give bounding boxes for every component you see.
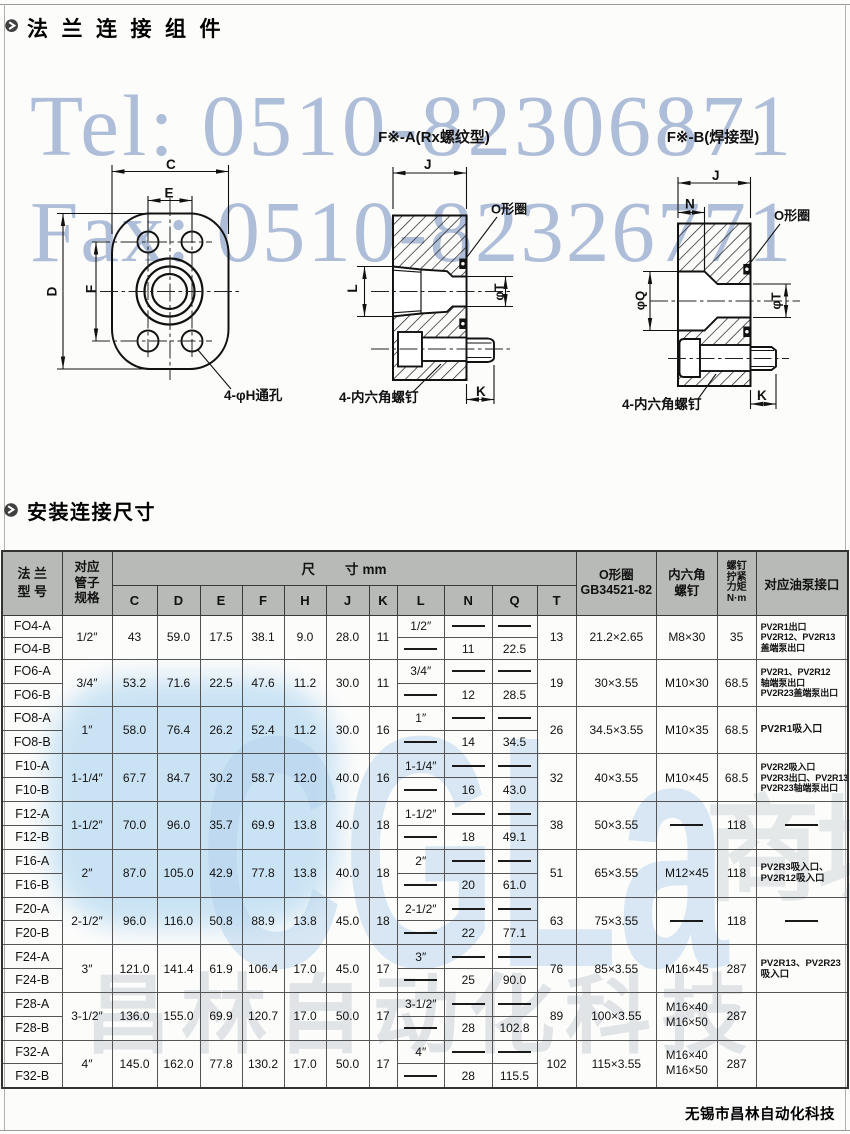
- svg-text:E: E: [165, 186, 174, 201]
- svg-text:L: L: [345, 284, 360, 292]
- svg-text:O形圈: O形圈: [774, 208, 810, 223]
- svg-text:4-内六角螺钉: 4-内六角螺钉: [339, 389, 419, 405]
- svg-text:O形圈: O形圈: [491, 202, 527, 217]
- svg-text:4-φH通孔: 4-φH通孔: [224, 388, 283, 403]
- svg-text:φT: φT: [769, 292, 784, 309]
- svg-text:K: K: [476, 384, 486, 399]
- svg-text:φQ: φQ: [633, 291, 648, 310]
- svg-text:J: J: [712, 168, 720, 183]
- svg-text:φT: φT: [492, 283, 507, 300]
- svg-text:F: F: [84, 285, 99, 293]
- svg-text:J: J: [424, 157, 432, 172]
- svg-text:F※-A(Rx螺纹型): F※-A(Rx螺纹型): [378, 128, 490, 146]
- svg-text:C: C: [166, 157, 176, 172]
- svg-text:F※-B(焊接型): F※-B(焊接型): [667, 128, 760, 146]
- svg-text:N: N: [685, 197, 695, 212]
- svg-text:K: K: [757, 388, 767, 403]
- svg-text:D: D: [45, 286, 60, 296]
- svg-text:4-内六角螺钉: 4-内六角螺钉: [622, 396, 702, 412]
